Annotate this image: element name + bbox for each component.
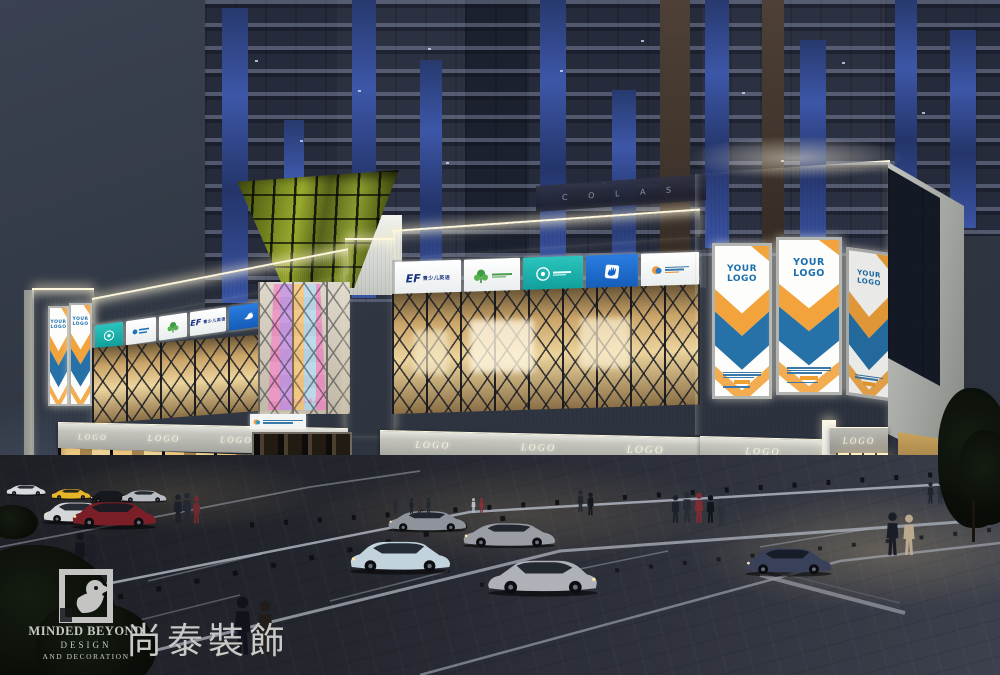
sign-green-tree — [159, 313, 187, 341]
pedestrian — [425, 498, 432, 513]
car-silver-coupe — [484, 550, 602, 597]
car-dark-red-sedan — [68, 494, 160, 530]
pedestrian — [478, 498, 485, 513]
lit-window — [446, 162, 449, 164]
fascia-logo-sign: LOGO — [843, 436, 876, 446]
store-display-glow — [470, 320, 534, 372]
pedestrian — [576, 490, 585, 512]
your-logo-banner-3: YOUR LOGO — [846, 247, 892, 401]
wordmark-icon — [132, 325, 150, 338]
pedestrian — [392, 498, 399, 514]
lit-window — [428, 48, 431, 50]
fascia-logo-sign: LOGO — [78, 432, 108, 442]
rooftop-faint-text: C O L A S — [562, 184, 680, 201]
pedestrian — [400, 496, 407, 514]
banner-label: YOUR LOGO — [71, 317, 90, 327]
tree-icon — [472, 268, 490, 285]
pedestrian — [716, 498, 727, 526]
tower-glass-strip — [950, 30, 976, 228]
tree-icon — [166, 319, 180, 334]
illegible-text-lines — [553, 270, 571, 277]
pedestrian — [901, 514, 917, 556]
side-corner-glass-grid — [888, 168, 940, 386]
pedestrian — [693, 492, 705, 524]
your-logo-banner-small-1: YOUR LOGO — [48, 306, 69, 406]
your-logo-banner-2: YOUR LOGO — [776, 237, 842, 395]
your-logo-banner-small-2: YOUR LOGO — [69, 303, 92, 406]
watermark-bird-logo — [58, 568, 114, 624]
entrance-sign-icon — [253, 418, 261, 426]
entrance-sign — [250, 414, 306, 429]
banner-footnote-lines — [787, 366, 830, 384]
lit-window — [358, 90, 361, 92]
car-gray-supercar — [458, 516, 560, 549]
pedestrian — [670, 494, 681, 524]
tree-trunk — [972, 500, 975, 542]
sign-multicolor-education — [641, 252, 699, 288]
night-render-scene: C O L A S YOUR LOGO YOUR LOGO — [0, 0, 1000, 675]
tower-glass-strip — [222, 8, 248, 303]
pedestrian — [416, 497, 423, 514]
fascia-logo-sign: LOGO — [148, 433, 181, 444]
sign-blue-wordmark — [126, 317, 156, 345]
corner-fascia: LOGO — [830, 427, 888, 454]
pedestrian — [191, 496, 202, 524]
sign-blue-hand — [586, 254, 638, 290]
pedestrian — [681, 490, 693, 524]
lit-window — [842, 62, 845, 64]
illegible-text-lines — [665, 265, 689, 274]
fascia-logo-sign: LOGO — [521, 442, 556, 454]
lit-window — [922, 112, 925, 114]
pedestrian — [884, 512, 901, 556]
emblem-icon — [535, 266, 551, 283]
lit-window — [300, 140, 303, 142]
watermark: MINDED BEYOND DESIGN AND DECORATION 尚泰裝飾 — [30, 560, 330, 670]
multicolor-icon — [651, 264, 663, 276]
store-display-glow — [580, 318, 630, 368]
banner-label: YOUR LOGO — [779, 258, 839, 280]
your-logo-banner-1: YOUR LOGO — [712, 243, 772, 399]
lit-window — [255, 60, 258, 62]
atrium-grid-overlay — [258, 282, 350, 414]
sign-ef-english: EF 青少儿英语 — [395, 260, 461, 296]
car-light-blue-sedan — [346, 532, 454, 575]
sign-green-tree — [464, 258, 520, 294]
illegible-text-lines — [263, 419, 303, 425]
emblem-icon — [103, 329, 115, 343]
pedestrian — [470, 498, 477, 513]
lit-window — [641, 40, 644, 42]
hand-icon — [603, 262, 621, 281]
store-display-glow — [414, 330, 448, 374]
sign-ef-english: EF 青少儿英语 — [190, 307, 226, 336]
sign-emblem-badge — [523, 256, 583, 292]
banner-label: YOUR LOGO — [715, 264, 769, 285]
center-pier — [345, 238, 395, 436]
illegible-text-lines — [492, 272, 512, 279]
banner-footnote-lines — [723, 371, 762, 389]
tree-foliage — [958, 430, 1000, 525]
lit-window — [560, 70, 563, 72]
fascia-logo-sign: LOGO — [415, 439, 450, 451]
pedestrian — [705, 494, 716, 524]
pedestrian — [586, 492, 595, 516]
pedestrian — [926, 482, 935, 504]
car-dark-blue-sedan — [742, 540, 835, 577]
lit-window — [742, 92, 745, 94]
dove-icon — [241, 308, 255, 324]
watermark-name-cn: 尚泰裝飾 — [126, 612, 290, 664]
fascia-logo-sign: LOGO — [220, 434, 253, 445]
banner-label: YOUR LOGO — [50, 320, 67, 330]
car-white-sports — [5, 482, 47, 496]
pedestrian — [408, 498, 415, 514]
